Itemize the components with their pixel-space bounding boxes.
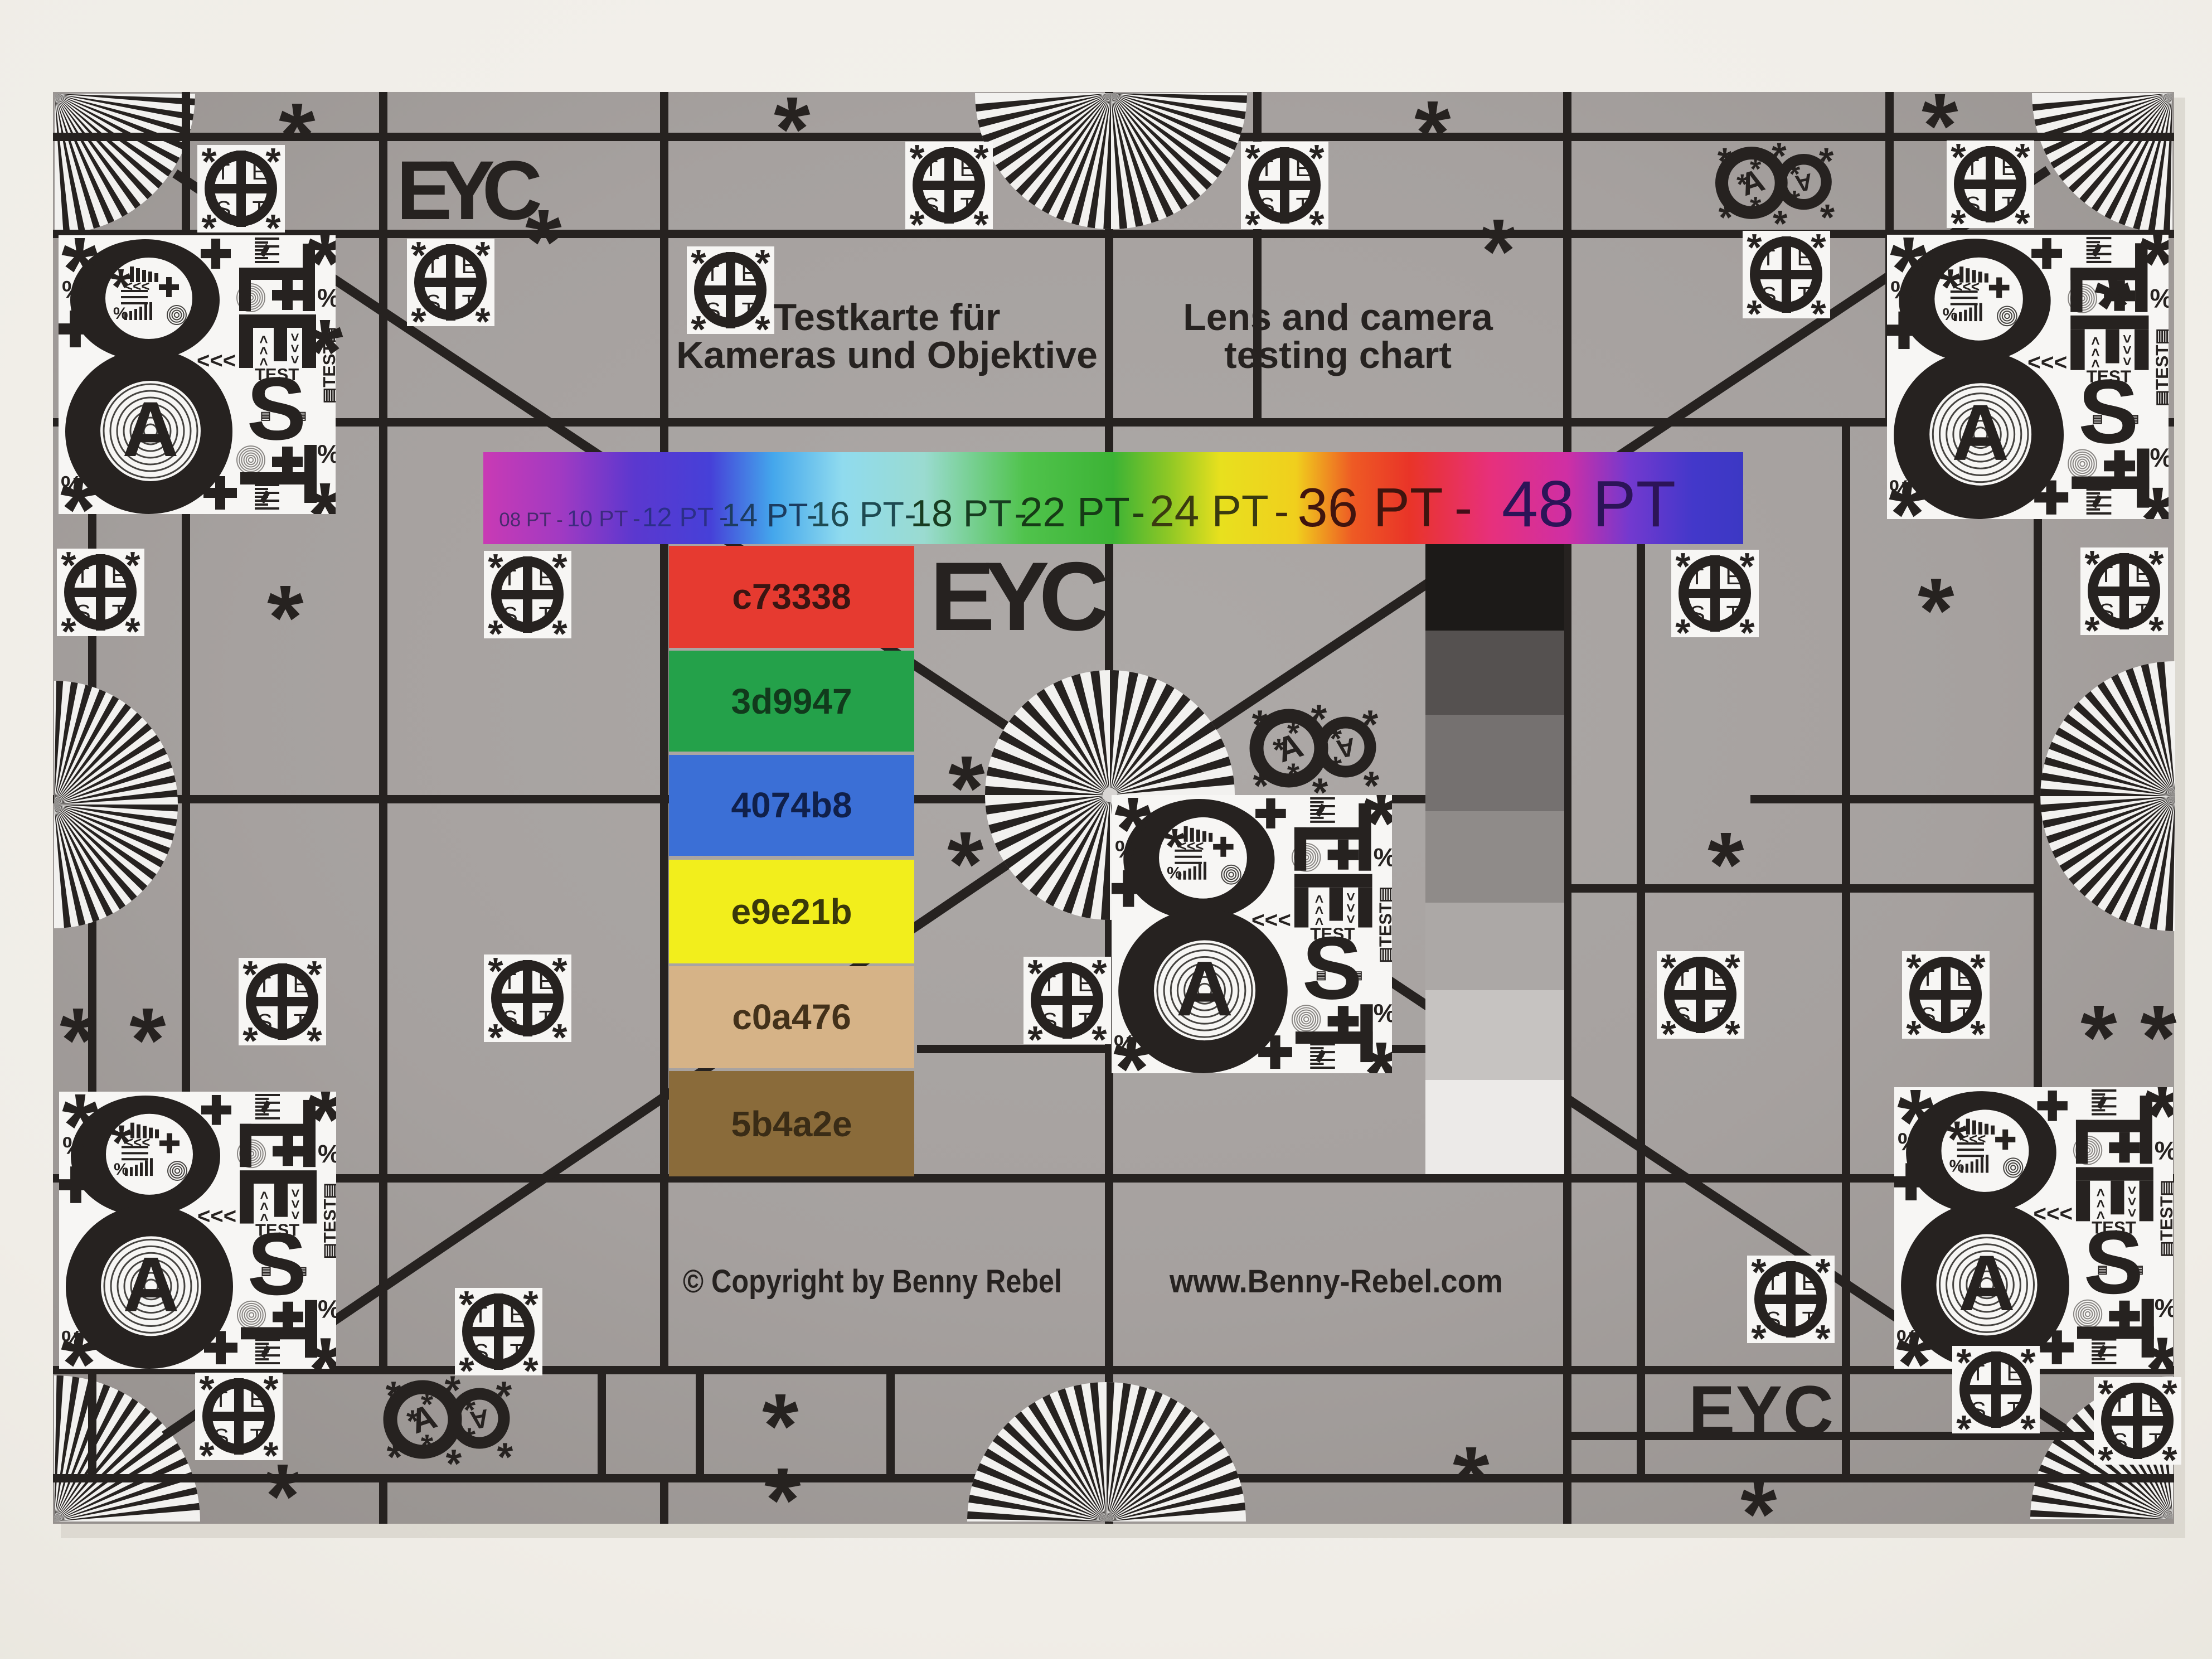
svg-text:S: S: [1302, 918, 1362, 1018]
svg-text:3d9947: 3d9947: [731, 681, 852, 721]
svg-text:T: T: [425, 253, 439, 278]
svg-text:T: T: [1259, 156, 1273, 181]
svg-text:S: S: [216, 196, 231, 222]
svg-text:E: E: [741, 260, 756, 286]
svg-text:T: T: [960, 193, 974, 219]
svg-text:T: T: [257, 972, 271, 997]
svg-text:▤: ▤: [260, 410, 271, 422]
svg-text:© Copyright by Benny Rebel: © Copyright by Benny Rebel: [683, 1263, 1062, 1300]
svg-text:%: %: [1949, 1157, 1964, 1175]
svg-text:E: E: [538, 565, 553, 590]
svg-text:S: S: [705, 298, 720, 323]
svg-text:E: E: [1956, 965, 1971, 991]
svg-text:A: A: [1958, 1239, 2015, 1327]
svg-text:S: S: [247, 358, 307, 458]
svg-text:T: T: [473, 1302, 487, 1327]
svg-text:T: T: [293, 1009, 307, 1035]
svg-text:4074b8: 4074b8: [731, 785, 852, 825]
svg-text:T: T: [1726, 601, 1740, 627]
svg-text:%: %: [113, 304, 128, 323]
svg-text:<<<: <<<: [125, 1135, 151, 1150]
svg-text:<<<: <<<: [1178, 837, 1204, 854]
svg-text:%: %: [61, 1326, 83, 1353]
svg-text:S: S: [502, 1006, 517, 1031]
svg-text:16 PT: 16 PT: [811, 495, 904, 534]
svg-text:T: T: [924, 156, 938, 181]
svg-text:▤: ▤: [261, 1265, 271, 1277]
svg-text:S: S: [1042, 1008, 1057, 1034]
svg-text:E: E: [1801, 1269, 1816, 1295]
svg-text:EYC: EYC: [930, 542, 1109, 651]
svg-text:E: E: [1725, 564, 1740, 589]
svg-text:5b4a2e: 5b4a2e: [731, 1104, 852, 1144]
svg-text:<<<: <<<: [2033, 1200, 2073, 1226]
svg-text:A: A: [123, 1241, 179, 1328]
svg-text:T: T: [1802, 1307, 1816, 1332]
svg-text:A: A: [1176, 945, 1233, 1032]
svg-text:Kameras und Objektive: Kameras und Objektive: [676, 334, 1098, 376]
svg-text:S: S: [473, 1339, 488, 1365]
svg-text:E: E: [1295, 156, 1310, 181]
svg-text:24 PT: 24 PT: [1149, 486, 1268, 536]
svg-text:T: T: [1711, 1002, 1725, 1028]
svg-text:%: %: [1890, 276, 1913, 304]
svg-text:%: %: [1114, 1030, 1136, 1058]
svg-text:S: S: [1675, 1002, 1690, 1028]
svg-text:S: S: [1761, 282, 1776, 308]
svg-text:T: T: [2001, 192, 2015, 217]
svg-text:14 PT: 14 PT: [722, 497, 808, 534]
svg-text:E: E: [2135, 561, 2150, 587]
svg-text:T: T: [252, 196, 266, 222]
svg-text:S: S: [214, 1424, 229, 1450]
svg-text:S: S: [425, 290, 440, 316]
svg-text:E: E: [461, 253, 476, 278]
svg-text:▤: ▤: [297, 1265, 307, 1277]
svg-text:-: -: [633, 506, 641, 531]
svg-text:▤: ▤: [2133, 1263, 2144, 1276]
svg-text:Testkarte für: Testkarte für: [774, 296, 1001, 338]
svg-text:www.Benny-Rebel.com: www.Benny-Rebel.com: [1169, 1263, 1503, 1300]
svg-text:T: T: [2112, 1391, 2126, 1417]
svg-text:E: E: [1711, 965, 1726, 991]
svg-text:▤: ▤: [296, 410, 307, 422]
svg-text:E: E: [2148, 1391, 2163, 1417]
svg-text:48 PT: 48 PT: [1502, 467, 1676, 540]
svg-text:T: T: [1078, 1008, 1092, 1034]
svg-text:36 PT: 36 PT: [1297, 477, 1443, 538]
svg-text:%: %: [1943, 305, 1958, 324]
svg-text:E: E: [1797, 245, 1812, 270]
svg-text:T: T: [1797, 282, 1811, 308]
svg-text:-: -: [1454, 477, 1473, 538]
svg-text:T: T: [502, 968, 516, 994]
svg-text:T: T: [2148, 1428, 2162, 1454]
svg-text:%: %: [62, 1132, 84, 1159]
svg-text:S: S: [2112, 1428, 2127, 1454]
svg-text:A: A: [122, 385, 178, 473]
svg-text:T: T: [502, 565, 516, 590]
svg-text:T: T: [539, 1006, 552, 1031]
svg-text:EYC: EYC: [396, 143, 542, 237]
svg-text:S: S: [502, 602, 517, 628]
svg-text:S: S: [2078, 361, 2138, 462]
svg-text:10 PT: 10 PT: [567, 506, 628, 531]
svg-text:T: T: [214, 1387, 227, 1412]
svg-text:S: S: [248, 1214, 307, 1313]
svg-text:T: T: [1296, 193, 1309, 219]
svg-text:%: %: [1889, 475, 1912, 503]
svg-text:E: E: [249, 1387, 264, 1412]
svg-text:E: E: [959, 156, 974, 181]
svg-text:S: S: [1259, 193, 1274, 219]
svg-text:%: %: [1896, 1326, 1918, 1353]
svg-text:T: T: [462, 290, 476, 316]
svg-text:E: E: [111, 563, 126, 588]
svg-text:▤: ▤: [1316, 969, 1326, 981]
svg-text:T: T: [1675, 965, 1689, 991]
svg-text:▤: ▤: [2092, 413, 2103, 425]
svg-text:EYC: EYC: [1689, 1372, 1833, 1450]
svg-text:<<<: <<<: [197, 1204, 236, 1229]
svg-text:<<<: <<<: [1251, 908, 1291, 933]
svg-text:T: T: [216, 159, 230, 185]
svg-text:<<<: <<<: [197, 348, 236, 373]
svg-text:%: %: [61, 471, 83, 498]
svg-text:S: S: [257, 1009, 272, 1035]
svg-text:E: E: [1078, 971, 1093, 996]
svg-text:S: S: [1920, 1002, 1935, 1028]
svg-text:-: -: [1274, 486, 1289, 536]
svg-text:T: T: [539, 602, 552, 628]
svg-text:12 PT: 12 PT: [642, 503, 714, 532]
svg-text:%: %: [62, 276, 84, 303]
svg-text:-: -: [556, 509, 563, 531]
svg-text:▤: ▤: [2097, 1263, 2108, 1276]
svg-text:S: S: [2084, 1212, 2143, 1312]
svg-text:-: -: [1132, 489, 1146, 535]
svg-text:S: S: [924, 193, 939, 219]
svg-text:S: S: [1765, 1307, 1781, 1332]
svg-text:T: T: [741, 298, 755, 323]
svg-text:T: T: [75, 563, 89, 588]
svg-text:T: T: [1761, 245, 1775, 270]
svg-text:<<<: <<<: [1961, 1130, 1986, 1147]
svg-text:T: T: [111, 600, 125, 626]
svg-text:c0a476: c0a476: [732, 997, 851, 1037]
svg-text:▤: ▤: [2128, 413, 2139, 425]
svg-text:E: E: [538, 968, 553, 994]
svg-text:08 PT: 08 PT: [499, 509, 551, 531]
svg-text:18 PT: 18 PT: [910, 492, 1011, 535]
svg-text:E: E: [251, 159, 266, 185]
svg-text:%: %: [1115, 836, 1137, 863]
svg-text:%: %: [1898, 1128, 1919, 1156]
svg-text:c73338: c73338: [732, 576, 851, 617]
svg-text:T: T: [2007, 1397, 2021, 1423]
svg-text:A: A: [1952, 389, 2009, 477]
svg-text:<<<: <<<: [124, 278, 150, 294]
svg-text:T: T: [1920, 965, 1934, 991]
svg-text:%: %: [114, 1160, 129, 1179]
svg-text:T: T: [2135, 599, 2149, 624]
svg-text:S: S: [1690, 601, 1705, 627]
svg-text:e9e21b: e9e21b: [731, 891, 852, 932]
svg-text:<<<: <<<: [2027, 350, 2067, 375]
svg-text:S: S: [1965, 192, 1980, 217]
svg-text:E: E: [509, 1302, 524, 1327]
svg-text:T: T: [2099, 561, 2113, 587]
svg-text:%: %: [1167, 864, 1182, 883]
svg-text:T: T: [1965, 154, 1979, 180]
svg-text:T: T: [510, 1339, 523, 1365]
svg-text:T: T: [1957, 1002, 1971, 1028]
svg-text:T: T: [250, 1424, 264, 1450]
svg-text:E: E: [2001, 154, 2016, 180]
svg-text:E: E: [293, 972, 308, 997]
svg-text:Lens and camera: Lens and camera: [1183, 296, 1493, 338]
svg-text:T: T: [1042, 971, 1056, 996]
svg-text:E: E: [2006, 1360, 2021, 1385]
svg-text:T: T: [705, 260, 719, 286]
svg-text:T: T: [1690, 564, 1704, 589]
svg-text:T: T: [1971, 1360, 1985, 1385]
svg-text:▤: ▤: [1352, 969, 1362, 981]
svg-text:22 PT: 22 PT: [1020, 489, 1129, 535]
svg-text:T: T: [1765, 1269, 1779, 1295]
svg-text:<<<: <<<: [1954, 278, 1980, 295]
svg-text:S: S: [75, 600, 90, 626]
svg-text:testing chart: testing chart: [1224, 334, 1452, 376]
svg-text:S: S: [2099, 599, 2114, 624]
svg-text:S: S: [1971, 1397, 1986, 1423]
